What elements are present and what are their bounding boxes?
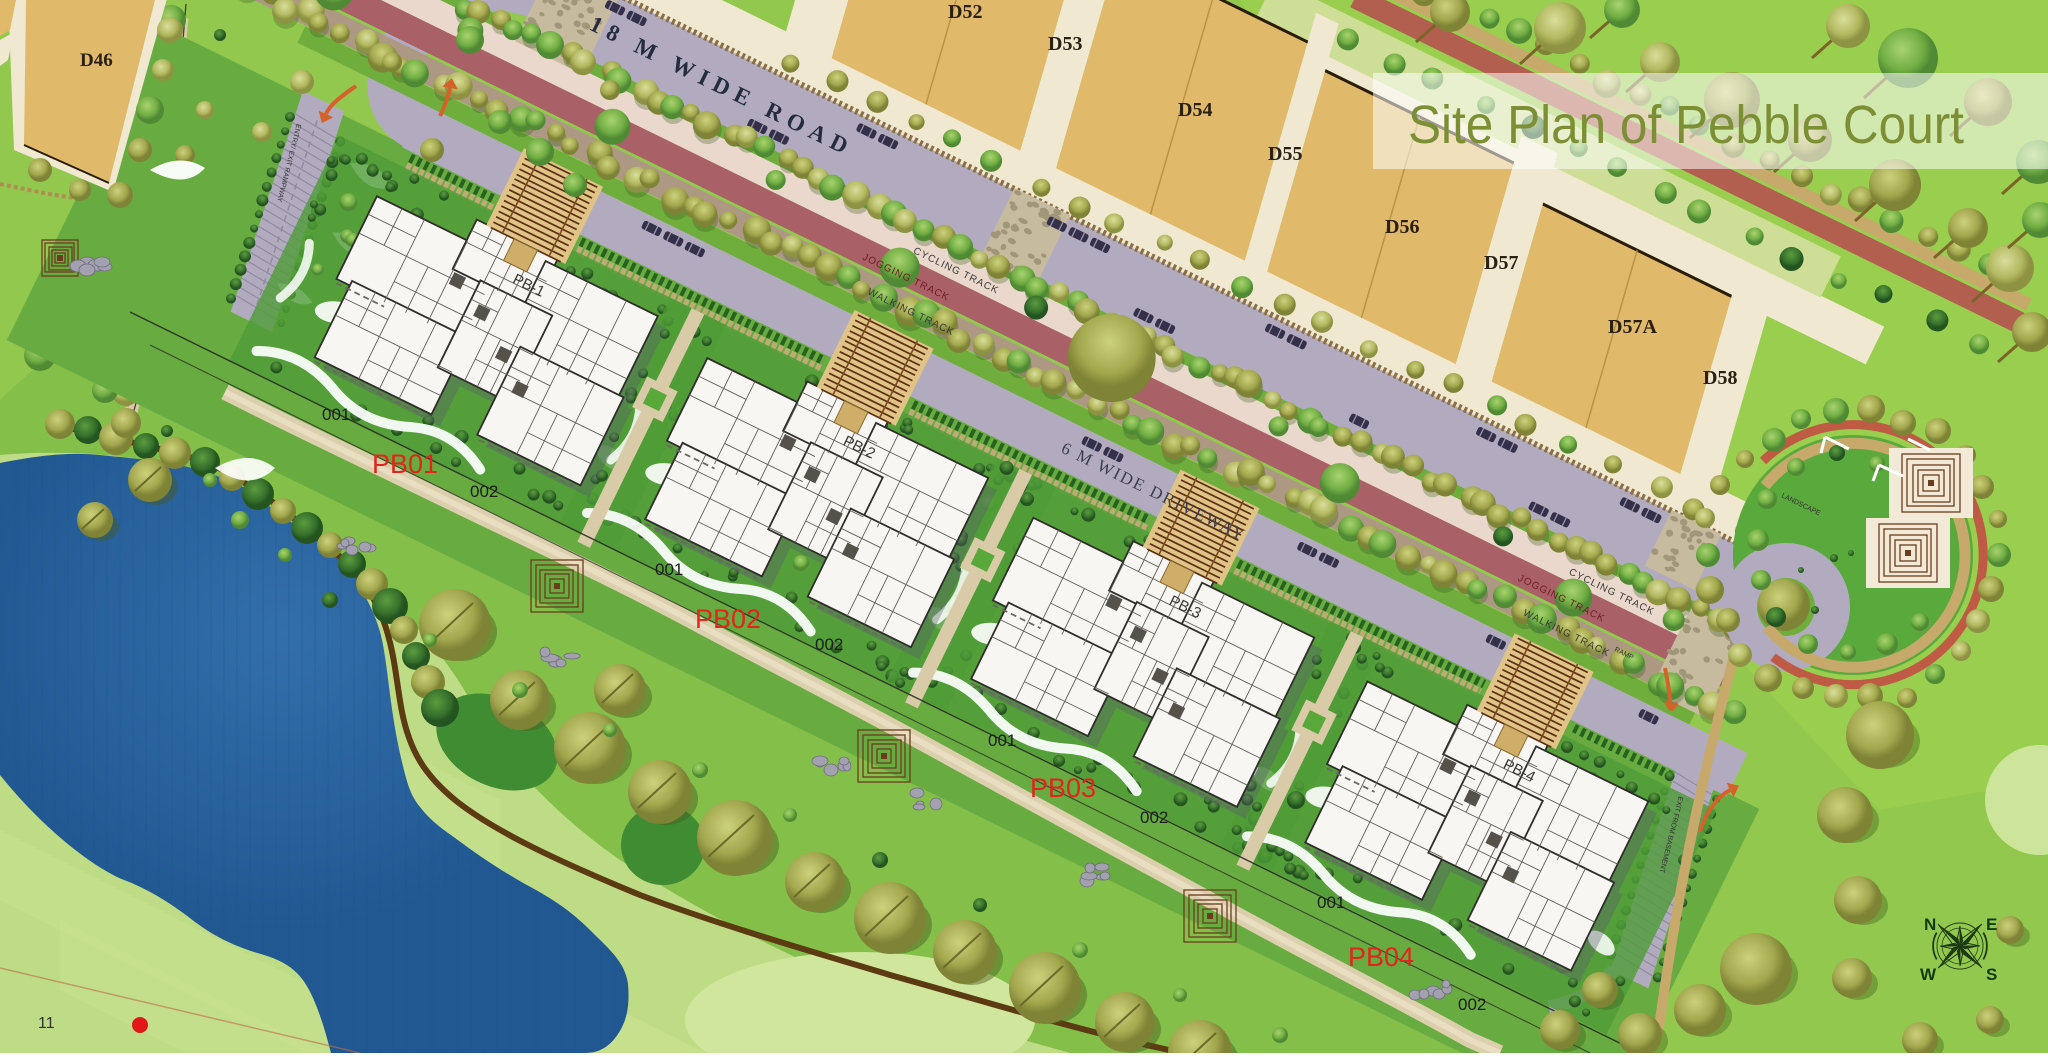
svg-text:E: E xyxy=(1986,915,1997,934)
svg-text:001: 001 xyxy=(988,731,1016,750)
svg-text:D53: D53 xyxy=(1048,33,1082,55)
svg-text:001: 001 xyxy=(655,560,683,579)
svg-text:PB01: PB01 xyxy=(372,449,438,479)
svg-text:D55: D55 xyxy=(1268,143,1302,165)
svg-text:002: 002 xyxy=(815,635,843,654)
svg-text:PB02: PB02 xyxy=(695,604,761,634)
svg-text:D52: D52 xyxy=(948,1,982,23)
svg-text:D46: D46 xyxy=(80,50,113,71)
svg-text:PB03: PB03 xyxy=(1030,773,1096,803)
svg-text:W: W xyxy=(1920,965,1937,984)
svg-text:Site Plan of Pebble Court: Site Plan of Pebble Court xyxy=(1408,95,1964,155)
svg-text:001: 001 xyxy=(322,405,350,424)
svg-text:002: 002 xyxy=(1458,995,1486,1014)
svg-text:002: 002 xyxy=(470,482,498,501)
svg-text:N: N xyxy=(1924,915,1936,934)
svg-text:PB04: PB04 xyxy=(1348,942,1414,972)
svg-text:D54: D54 xyxy=(1178,99,1212,121)
svg-text:S: S xyxy=(1986,965,1997,984)
svg-text:11: 11 xyxy=(38,1015,55,1032)
svg-text:002: 002 xyxy=(1140,808,1168,827)
svg-text:D57: D57 xyxy=(1484,252,1518,274)
svg-text:001: 001 xyxy=(1317,893,1345,912)
svg-text:D58: D58 xyxy=(1703,367,1737,389)
svg-text:D57A: D57A xyxy=(1608,316,1657,338)
svg-text:D56: D56 xyxy=(1385,216,1419,238)
